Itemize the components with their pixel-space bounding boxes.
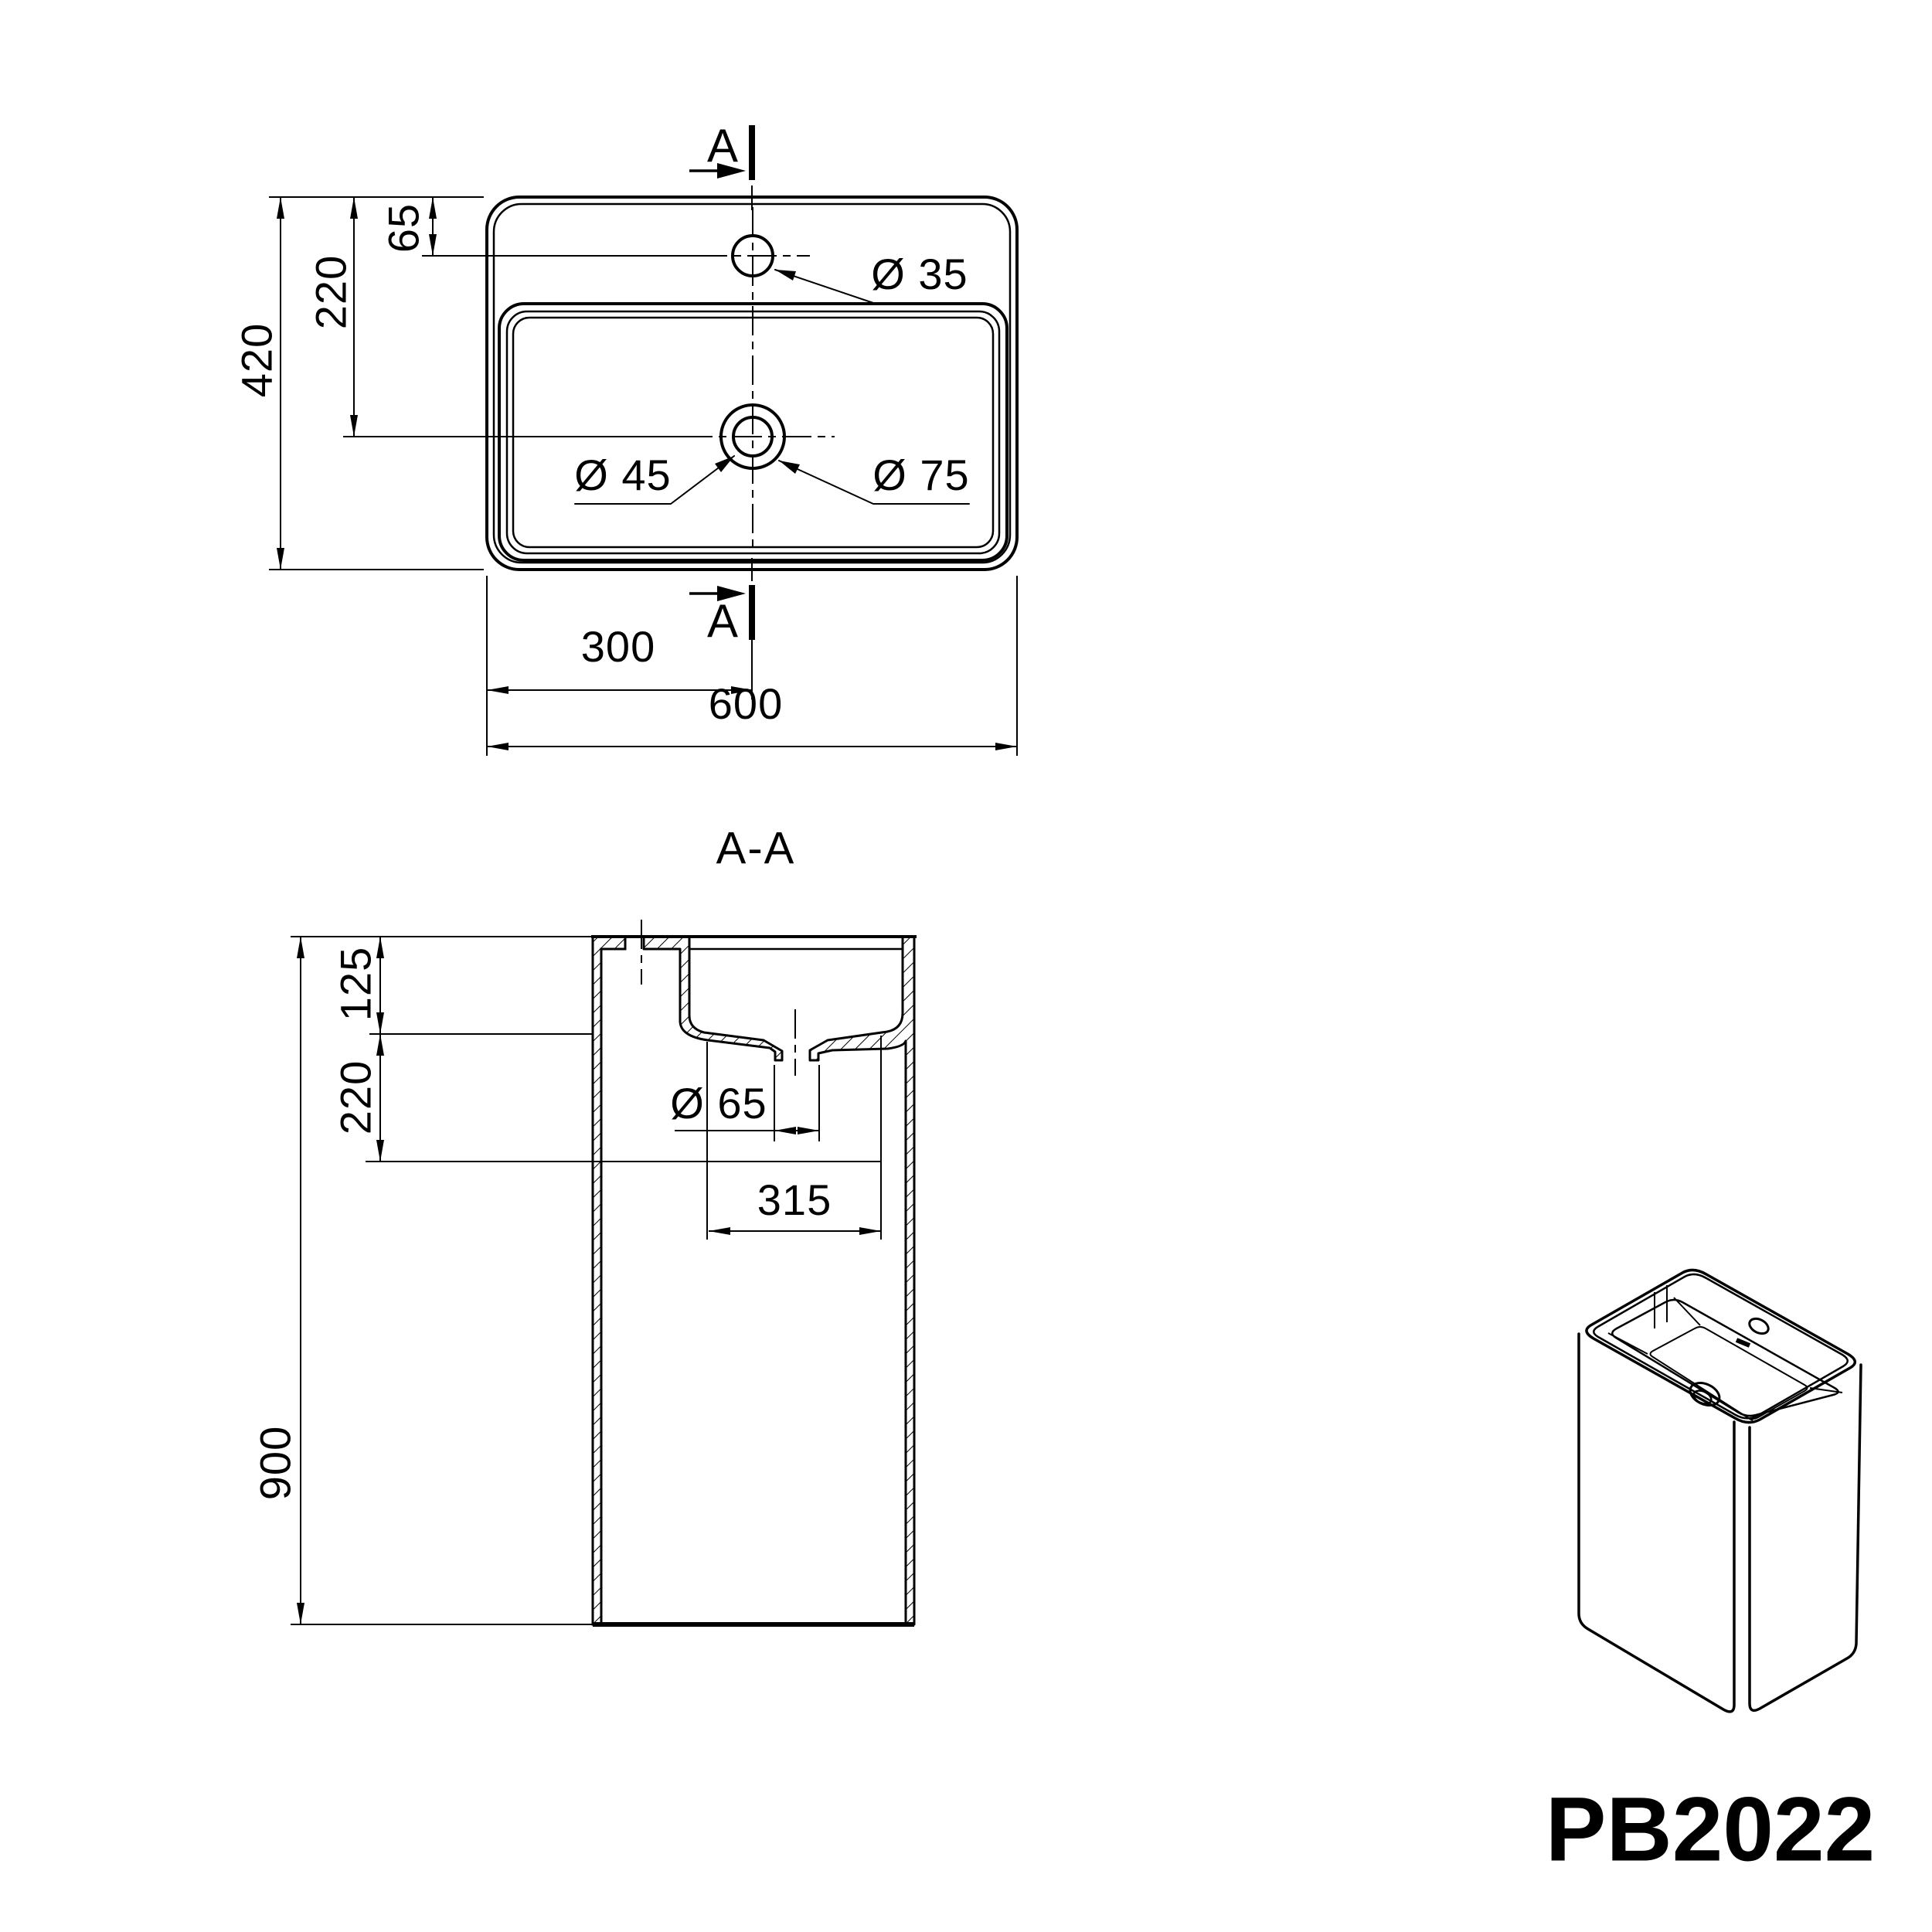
arrow-head [487,686,509,694]
dimension-220-section: 220 [332,1034,881,1162]
dimension-65: 65 [379,197,698,256]
arrow-head [995,743,1017,750]
dimension-125: 125 [332,937,593,1034]
leader-arrow-head [775,270,796,281]
arrow-head [376,1034,384,1056]
drawing-sheet: A A 420 220 [0,0,1932,1932]
dimension-dia-65: Ø 65 [670,1065,819,1141]
plan-view: A A 420 220 [233,120,1017,756]
arrow-head [859,1227,881,1235]
arrow-head [350,415,358,437]
dim-label-65: 65 [379,203,428,253]
product-code: PB2022 [1546,1778,1875,1880]
dia-label-65: Ø 65 [670,1079,767,1128]
arrow-head [297,937,304,958]
section-title: A-A [716,823,796,873]
arrow-head [376,1140,384,1162]
dim-label-220: 220 [307,255,355,329]
dim-label-600: 600 [709,679,783,728]
section-view: 900 125 220 Ø 65 [251,920,917,1624]
right-wall-and-basin-floor-sectioned [810,937,914,1624]
dim-label-900: 900 [251,1426,300,1500]
cut-letter-bottom: A [707,595,738,647]
dimension-420: 420 [233,197,484,570]
left-wall-sectioned [593,937,625,1624]
dia-label-45: Ø 45 [574,451,671,499]
technical-drawing: A A 420 220 [0,0,1932,1932]
cut-letter-top: A [707,120,738,172]
iso-basin-wall-edge [1674,1298,1700,1325]
arrow-head [774,1127,796,1134]
arrow-head [709,1227,730,1235]
arrow-head [798,1127,819,1134]
dim-label-220-section: 220 [332,1060,380,1134]
arrow-head [429,234,437,256]
section-cut-marker-bottom: A [689,558,752,655]
isometric-view [1579,1270,1861,1711]
leader-arrow-head [779,461,800,474]
arrow-head [277,197,284,219]
iso-faucet-hole [1747,1316,1771,1337]
leader-dia-35: Ø 35 [775,250,968,303]
dim-label-125: 125 [332,947,380,1021]
arrow-head [277,548,284,570]
dim-label-315: 315 [757,1175,832,1224]
dia-label-35: Ø 35 [871,250,968,298]
leader-dia-75: Ø 75 [779,451,970,504]
dia-label-75: Ø 75 [872,451,969,499]
dim-label-300: 300 [581,622,655,671]
iso-overflow-slot [1736,1340,1750,1345]
arrow-head [350,197,358,219]
arrow-head [297,1603,304,1624]
arrow-head [429,197,437,219]
dimension-315: 315 [707,1036,881,1240]
dimension-900: 900 [251,937,593,1624]
iso-basin-opening [1612,1300,1838,1416]
arrow-head [487,743,509,750]
deck-and-basin-left-wall-sectioned [644,937,782,1060]
dim-label-420: 420 [233,323,281,397]
iso-left-face [1579,1334,1734,1712]
leader-arrow-head [715,456,734,472]
leader-dia-45: Ø 45 [574,451,734,504]
